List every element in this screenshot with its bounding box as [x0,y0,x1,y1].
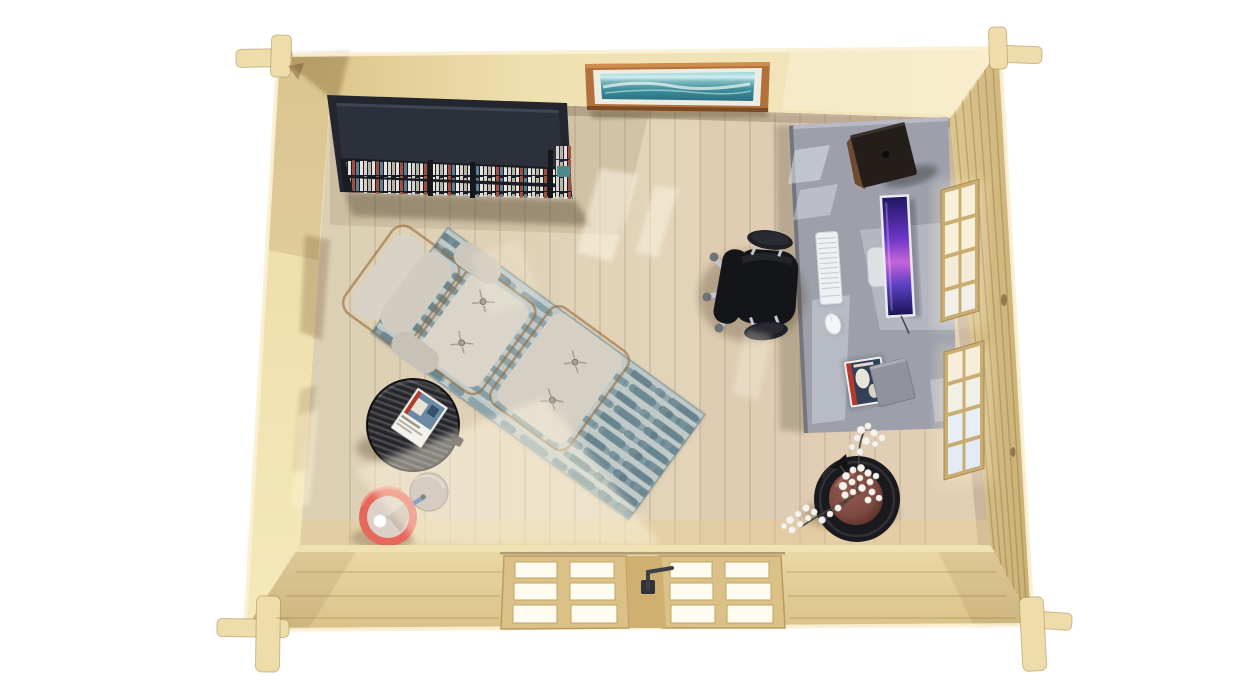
window-upper [941,179,979,322]
lamp-bulb [374,515,387,528]
cabin-top-view-render [0,0,1244,700]
bookshelf [327,95,592,226]
window-lower [944,341,984,480]
seascape-picture [585,62,770,119]
render-canvas [0,0,1244,700]
desk [775,116,958,433]
